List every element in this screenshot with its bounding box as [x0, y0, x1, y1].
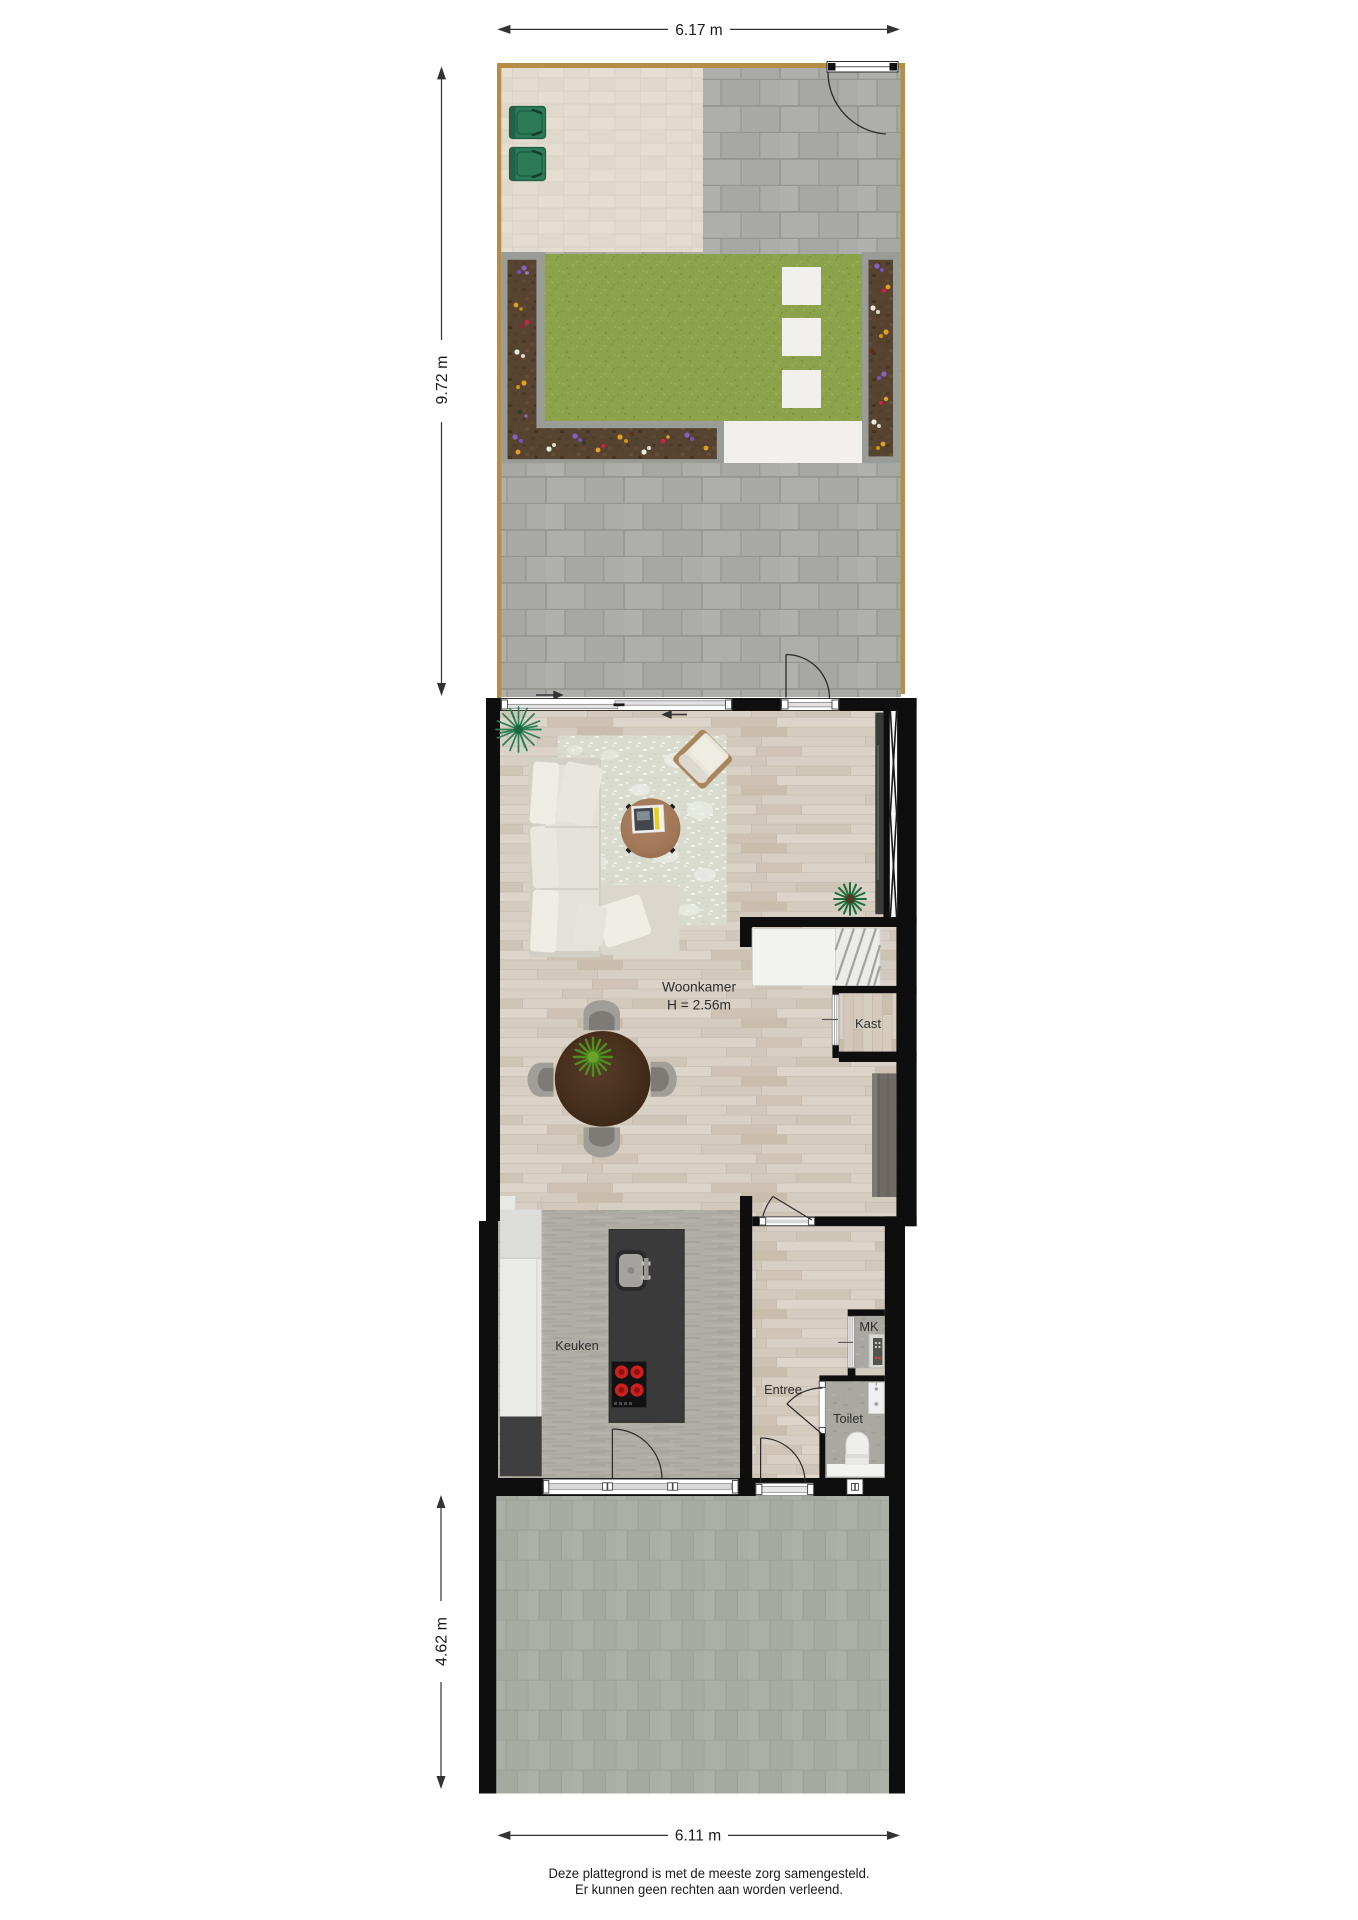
svg-text:9.72 m: 9.72 m — [434, 356, 451, 405]
svg-text:Woonkamer: Woonkamer — [662, 980, 737, 995]
svg-text:MK: MK — [859, 1319, 879, 1334]
svg-text:Deze plattegrond is met de mee: Deze plattegrond is met de meeste zorg s… — [549, 1865, 870, 1881]
svg-text:Er kunnen geen rechten aan wor: Er kunnen geen rechten aan worden verlee… — [575, 1881, 843, 1897]
svg-text:6.11 m: 6.11 m — [675, 1828, 721, 1845]
svg-text:Entree: Entree — [764, 1382, 802, 1397]
svg-text:Keuken: Keuken — [555, 1338, 598, 1353]
svg-text:Kast: Kast — [855, 1016, 881, 1031]
svg-text:Toilet: Toilet — [833, 1411, 863, 1426]
svg-text:4.62 m: 4.62 m — [434, 1617, 451, 1666]
svg-text:H = 2.56m: H = 2.56m — [667, 998, 731, 1013]
svg-text:6.17 m: 6.17 m — [675, 22, 722, 39]
